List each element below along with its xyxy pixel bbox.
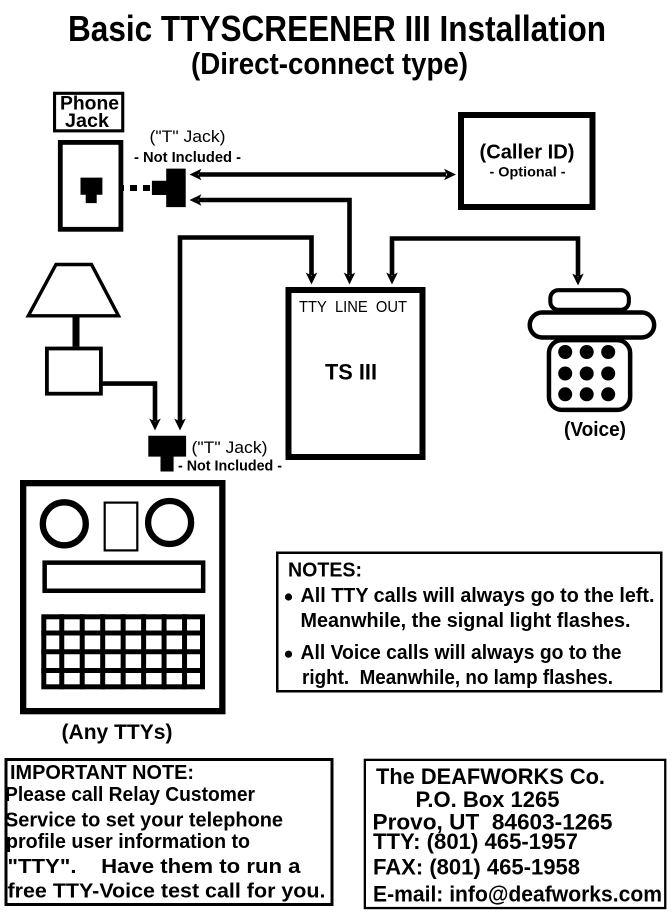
- svg-text:TS III: TS III: [325, 360, 377, 385]
- svg-text:TTY: (801) 465-1957: TTY: (801) 465-1957: [373, 829, 578, 854]
- svg-text:All TTY calls will always go t: All TTY calls will always go to the left…: [301, 585, 655, 607]
- svg-text:"TTY". Have them to run a: "TTY". Have them to run a: [8, 855, 302, 878]
- svg-text:- Not Included -: - Not Included -: [178, 459, 282, 475]
- svg-text:Jack: Jack: [65, 111, 109, 132]
- svg-text:(Direct-connect type): (Direct-connect type): [191, 46, 468, 81]
- svg-text:(Voice): (Voice): [564, 419, 626, 441]
- svg-text:profile user information to: profile user information to: [6, 830, 250, 853]
- svg-text:("T" Jack): ("T" Jack): [150, 127, 226, 146]
- svg-text:Meanwhile, the signal light fl: Meanwhile, the signal light flashes.: [301, 610, 631, 632]
- svg-text:Please call Relay Customer: Please call Relay Customer: [5, 783, 255, 806]
- svg-text:FAX: (801) 465-1958: FAX: (801) 465-1958: [373, 855, 580, 880]
- svg-text:right. Meanwhile, no lamp fla: right. Meanwhile, no lamp flashes.: [302, 667, 613, 689]
- svg-text:All Voice calls will always go: All Voice calls will always go to the: [301, 642, 622, 664]
- svg-text:Service to set your telephone: Service to set your telephone: [5, 809, 283, 832]
- svg-text:- Optional -: - Optional -: [490, 164, 566, 180]
- svg-text:TTY LINE OUT: TTY LINE OUT: [299, 299, 407, 316]
- svg-text:Basic TTYSCREENER III Installa: Basic TTYSCREENER III Installation: [68, 8, 606, 49]
- svg-text:- Not Included -: - Not Included -: [134, 150, 241, 166]
- svg-text:IMPORTANT NOTE:: IMPORTANT NOTE:: [10, 761, 194, 784]
- svg-text:E-mail: info@deafworks.com: E-mail: info@deafworks.com: [373, 882, 662, 907]
- svg-text:("T" Jack): ("T" Jack): [192, 438, 268, 457]
- svg-text:P.O. Box 1265: P.O. Box 1265: [416, 787, 560, 812]
- svg-text:(Caller ID): (Caller ID): [480, 142, 575, 164]
- svg-text:(Any TTYs): (Any TTYs): [62, 721, 173, 744]
- svg-text:The DEAFWORKS Co.: The DEAFWORKS Co.: [376, 764, 605, 789]
- svg-text:free TTY-Voice test call for y: free TTY-Voice test call for you.: [8, 880, 326, 903]
- svg-text:NOTES:: NOTES:: [288, 560, 362, 582]
